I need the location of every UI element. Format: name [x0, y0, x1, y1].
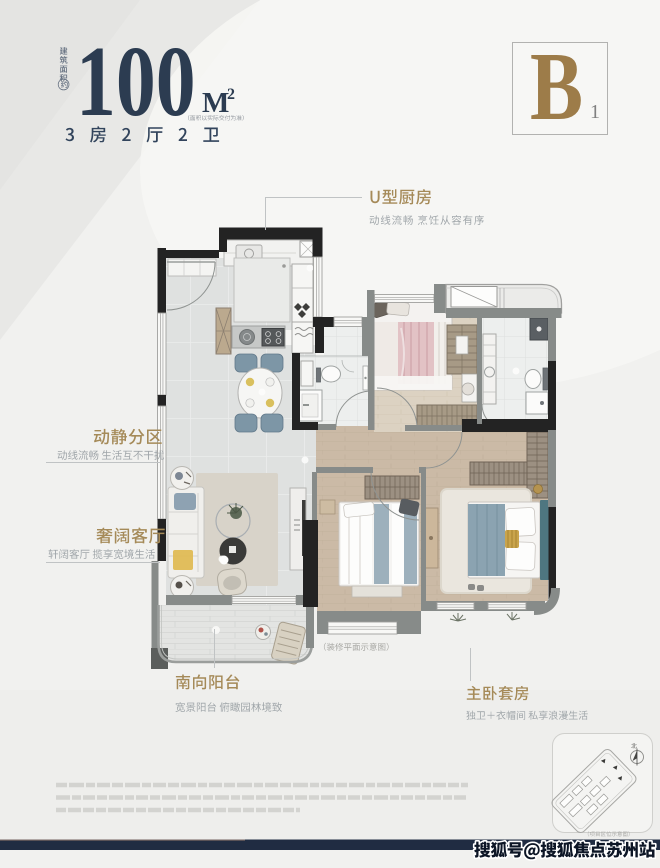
svg-text:B: B — [530, 34, 583, 141]
svg-text:2: 2 — [227, 86, 235, 103]
svg-text:100: 100 — [76, 25, 196, 137]
svg-text:M: M — [202, 87, 229, 119]
svg-text:1: 1 — [590, 101, 600, 123]
